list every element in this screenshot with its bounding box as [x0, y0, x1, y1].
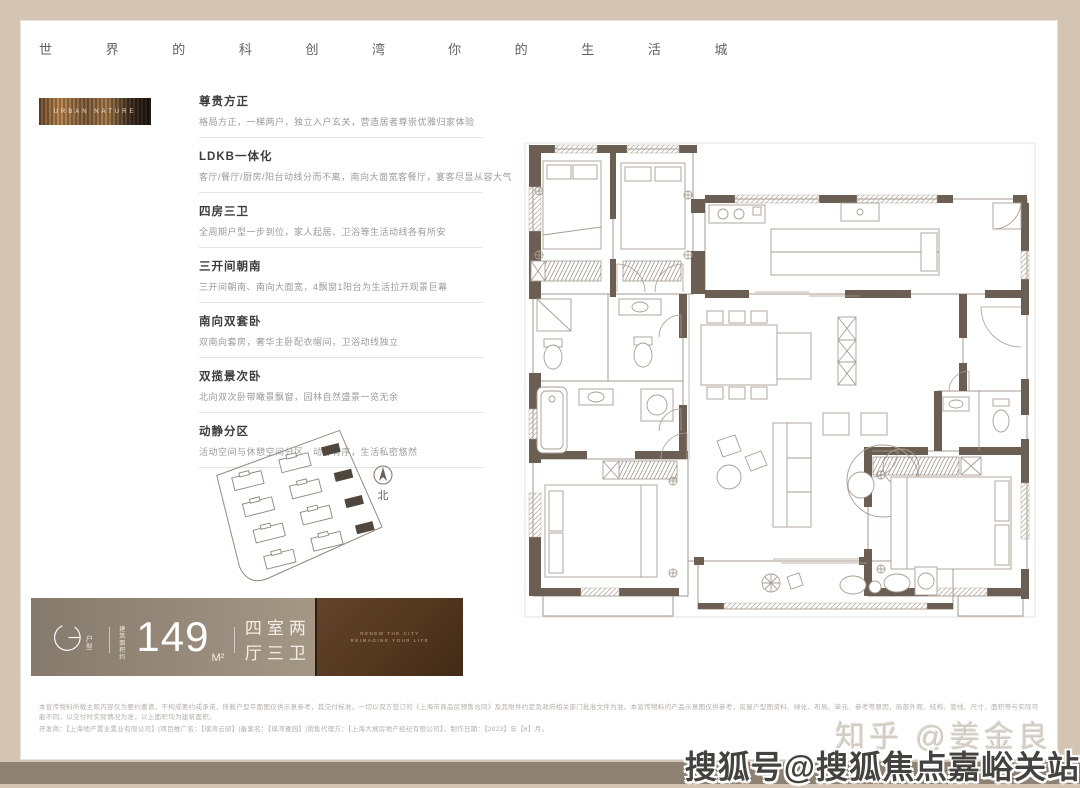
banner-photo: RENEW THE CITY REIMAGINE YOUR LIFE [315, 598, 463, 676]
banner-photo-tagline1: RENEW THE CITY [360, 630, 419, 637]
divider [199, 412, 483, 413]
feature-title: 尊贵方正 [199, 93, 483, 109]
site-plan-drawing: 北 [199, 429, 409, 599]
feature-title: 三开间朝南 [199, 258, 483, 274]
title-left: 世 界 的 科 创 湾 [39, 42, 410, 57]
brand-thumbnail: URBAN NATURE [39, 98, 151, 125]
divider [199, 247, 483, 248]
unit-letter-label: 户型 [86, 636, 93, 652]
area-prefix: 建筑面积约 [119, 627, 130, 662]
divider [199, 302, 483, 303]
feature-title: 南向双套卧 [199, 313, 483, 329]
feature-item: 四房三卫 全周期户型一步到位，家人起居、卫浴等生活动线各有所安 [199, 203, 483, 248]
feature-desc: 全周期户型一步到位，家人起居、卫浴等生活动线各有所安 [199, 225, 483, 238]
brochure-card: 世 界 的 科 创 湾你 的 生 活 城 URBAN NATURE 尊贵方正 格… [20, 20, 1058, 760]
banner-photo-tagline2: REIMAGINE YOUR LIFE [351, 637, 430, 644]
divider [109, 627, 110, 653]
furniture [531, 161, 1021, 595]
area-unit: M² [211, 652, 224, 664]
brand-thumbnail-label: URBAN NATURE [54, 109, 137, 115]
feature-list: 尊贵方正 格局方正，一梯两户，独立入户玄关，营造居者尊崇优雅归家体验 LDKB一… [199, 93, 483, 478]
divider [199, 357, 483, 358]
north-label: 北 [378, 489, 389, 502]
site-highlighted-buildings [321, 440, 375, 538]
unit-layout: 四室两厅三卫 [245, 614, 315, 664]
unit-type-info: 户型 建筑面积约 149 M² 四室两厅三卫 [31, 598, 315, 676]
area-value: 149 [136, 616, 209, 658]
unit-type-banner: 户型 建筑面积约 149 M² 四室两厅三卫 RENEW THE CITY RE… [31, 598, 463, 676]
page-title: 世 界 的 科 创 湾你 的 生 活 城 [39, 39, 753, 58]
feature-title: LDKB一体化 [199, 148, 483, 164]
feature-item: 尊贵方正 格局方正，一梯两户，独立入户玄关，营造居者尊崇优雅归家体验 [199, 93, 483, 138]
unit-letter-g [53, 608, 82, 666]
site-parcel [213, 429, 387, 585]
title-right: 你 的 生 活 城 [448, 42, 752, 57]
site-plan: 北 [199, 429, 409, 604]
feature-desc: 北向双次卧带瞰景飘窗，园林自然盛景一览无余 [199, 390, 483, 403]
feature-title: 四房三卫 [199, 203, 483, 219]
feature-item: 三开间朝南 三开间朝南、南向大面宽，4飘窗1阳台为生活拉开观景巨幕 [199, 258, 483, 303]
divider [199, 137, 483, 138]
feature-desc: 格局方正，一梯两户，独立入户玄关，营造居者尊崇优雅归家体验 [199, 115, 483, 128]
feature-desc: 客厅/餐厅/厨房/阳台动线分而不离，南向大面宽客餐厅，宴客尽显从容大气 [199, 170, 483, 183]
feature-desc: 三开间朝南、南向大面宽，4飘窗1阳台为生活拉开观景巨幕 [199, 280, 483, 293]
floor-plan [523, 141, 1041, 634]
floor-plan-drawing [523, 141, 1041, 629]
feature-item: 双揽景次卧 北向双次卧带瞰景飘窗，园林自然盛景一览无余 [199, 368, 483, 413]
site-buildings [230, 447, 345, 572]
watermark-sohu: 搜狐号@搜狐焦点嘉峪关站 [685, 742, 1080, 788]
feature-item: 南向双套卧 双南向套房，奢华主卧配衣帽间，卫浴动线独立 [199, 313, 483, 358]
feature-title: 双揽景次卧 [199, 368, 483, 384]
divider [199, 192, 483, 193]
north-arrow-icon: 北 [374, 466, 392, 502]
feature-desc: 双南向套房，奢华主卧配衣帽间，卫浴动线独立 [199, 335, 483, 348]
divider [234, 627, 235, 653]
feature-item: LDKB一体化 客厅/餐厅/厨房/阳台动线分而不离，南向大面宽客餐厅，宴客尽显从… [199, 148, 483, 193]
